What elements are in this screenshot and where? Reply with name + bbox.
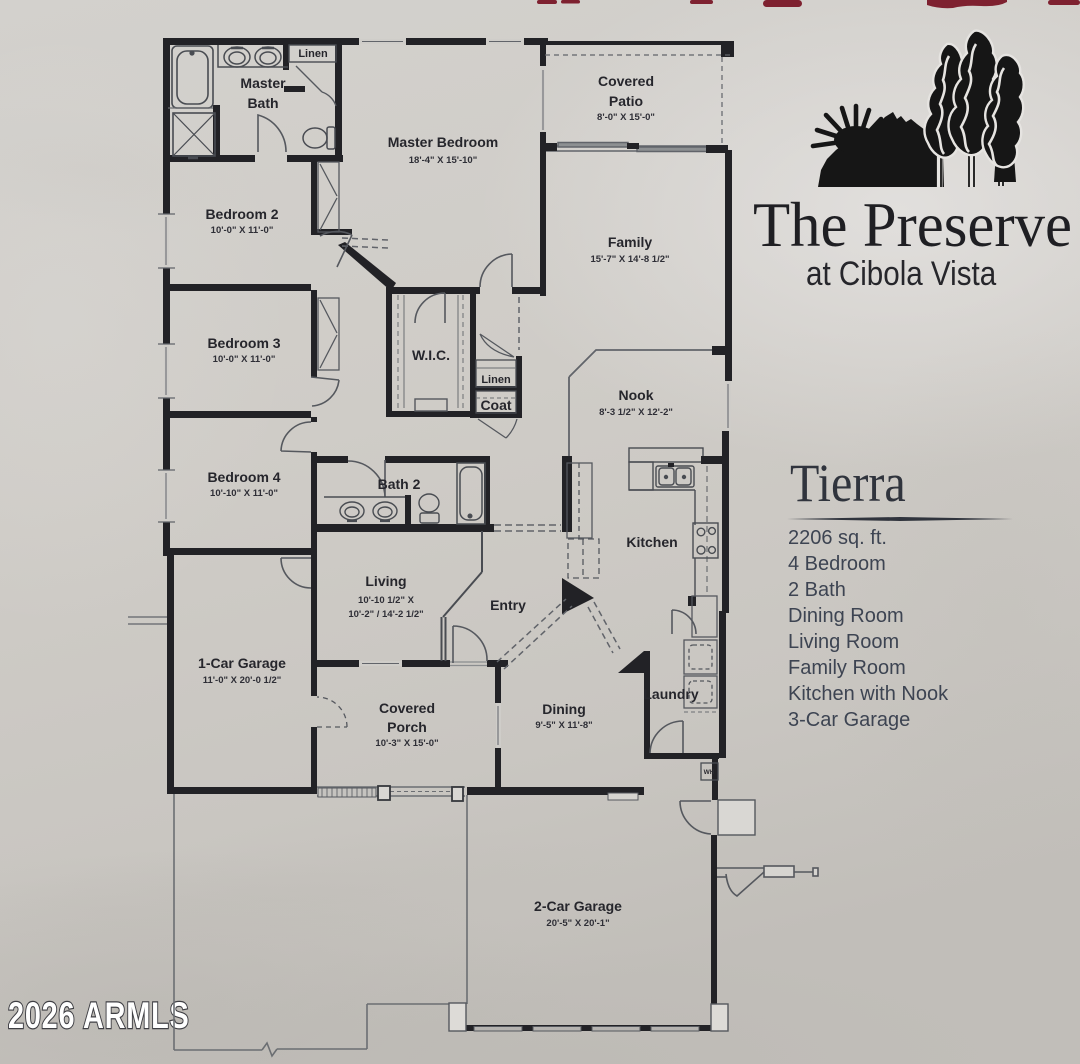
svg-text:WH: WH bbox=[704, 769, 715, 776]
svg-text:The Preserve: The Preserve bbox=[753, 189, 1072, 261]
svg-text:11'-0" X 20'-0 1/2": 11'-0" X 20'-0 1/2" bbox=[203, 675, 282, 686]
svg-text:Laundry: Laundry bbox=[643, 686, 698, 702]
svg-text:Entry: Entry bbox=[490, 597, 526, 613]
svg-text:Bath: Bath bbox=[247, 95, 278, 111]
svg-text:9'-5" X 11'-8": 9'-5" X 11'-8" bbox=[535, 720, 592, 731]
svg-text:2206 sq. ft.: 2206 sq. ft. bbox=[788, 527, 887, 549]
svg-text:10'-2" / 14'-2 1/2": 10'-2" / 14'-2 1/2" bbox=[348, 609, 423, 620]
svg-text:at Cibola Vista: at Cibola Vista bbox=[806, 254, 996, 292]
svg-text:Tierra: Tierra bbox=[790, 453, 906, 513]
svg-text:10'-0" X 11'-0": 10'-0" X 11'-0" bbox=[213, 354, 276, 365]
svg-text:Bedroom 3: Bedroom 3 bbox=[207, 335, 280, 351]
svg-text:10'-10 1/2" X: 10'-10 1/2" X bbox=[358, 595, 415, 606]
svg-text:2 Bath: 2 Bath bbox=[788, 579, 846, 601]
svg-text:3-Car Garage: 3-Car Garage bbox=[788, 709, 910, 731]
svg-text:Covered: Covered bbox=[379, 700, 435, 716]
svg-text:Family: Family bbox=[608, 234, 653, 250]
svg-text:Linen: Linen bbox=[481, 374, 511, 386]
svg-text:Patio: Patio bbox=[609, 93, 643, 109]
svg-text:Bath 2: Bath 2 bbox=[378, 476, 421, 492]
svg-text:10'-3" X 15'-0": 10'-3" X 15'-0" bbox=[375, 738, 438, 749]
svg-text:Master: Master bbox=[240, 75, 286, 91]
svg-text:Covered: Covered bbox=[598, 73, 654, 89]
svg-text:8'-3 1/2" X 12'-2": 8'-3 1/2" X 12'-2" bbox=[599, 407, 673, 418]
svg-text:4 Bedroom: 4 Bedroom bbox=[788, 553, 886, 575]
svg-text:8'-0" X 15'-0": 8'-0" X 15'-0" bbox=[597, 112, 655, 123]
svg-text:20'-5" X 20'-1": 20'-5" X 20'-1" bbox=[546, 918, 609, 929]
svg-text:10'-10" X 11'-0": 10'-10" X 11'-0" bbox=[210, 488, 278, 499]
svg-text:Nook: Nook bbox=[619, 387, 654, 403]
svg-text:18'-4" X 15'-10": 18'-4" X 15'-10" bbox=[409, 155, 477, 166]
svg-text:Dining: Dining bbox=[542, 701, 586, 717]
svg-text:Bedroom 4: Bedroom 4 bbox=[207, 469, 280, 485]
svg-text:Linen: Linen bbox=[298, 48, 328, 60]
svg-text:Family Room: Family Room bbox=[788, 657, 906, 679]
svg-text:Living Room: Living Room bbox=[788, 631, 899, 653]
svg-text:Porch: Porch bbox=[387, 719, 427, 735]
svg-text:W.I.C.: W.I.C. bbox=[412, 347, 450, 363]
svg-text:Master Bedroom: Master Bedroom bbox=[388, 134, 498, 150]
svg-text:2026 ARMLS: 2026 ARMLS bbox=[8, 996, 190, 1037]
svg-text:Kitchen with Nook: Kitchen with Nook bbox=[788, 683, 949, 705]
svg-text:Kitchen: Kitchen bbox=[626, 534, 677, 550]
svg-text:2-Car Garage: 2-Car Garage bbox=[534, 898, 622, 914]
svg-text:Living: Living bbox=[365, 573, 406, 589]
svg-text:10'-0" X 11'-0": 10'-0" X 11'-0" bbox=[211, 225, 274, 236]
svg-text:Bedroom 2: Bedroom 2 bbox=[205, 206, 278, 222]
svg-text:1-Car Garage: 1-Car Garage bbox=[198, 655, 286, 671]
svg-text:Dining Room: Dining Room bbox=[788, 605, 904, 627]
svg-text:Coat: Coat bbox=[480, 397, 511, 413]
svg-text:15'-7" X 14'-8 1/2": 15'-7" X 14'-8 1/2" bbox=[590, 254, 669, 265]
